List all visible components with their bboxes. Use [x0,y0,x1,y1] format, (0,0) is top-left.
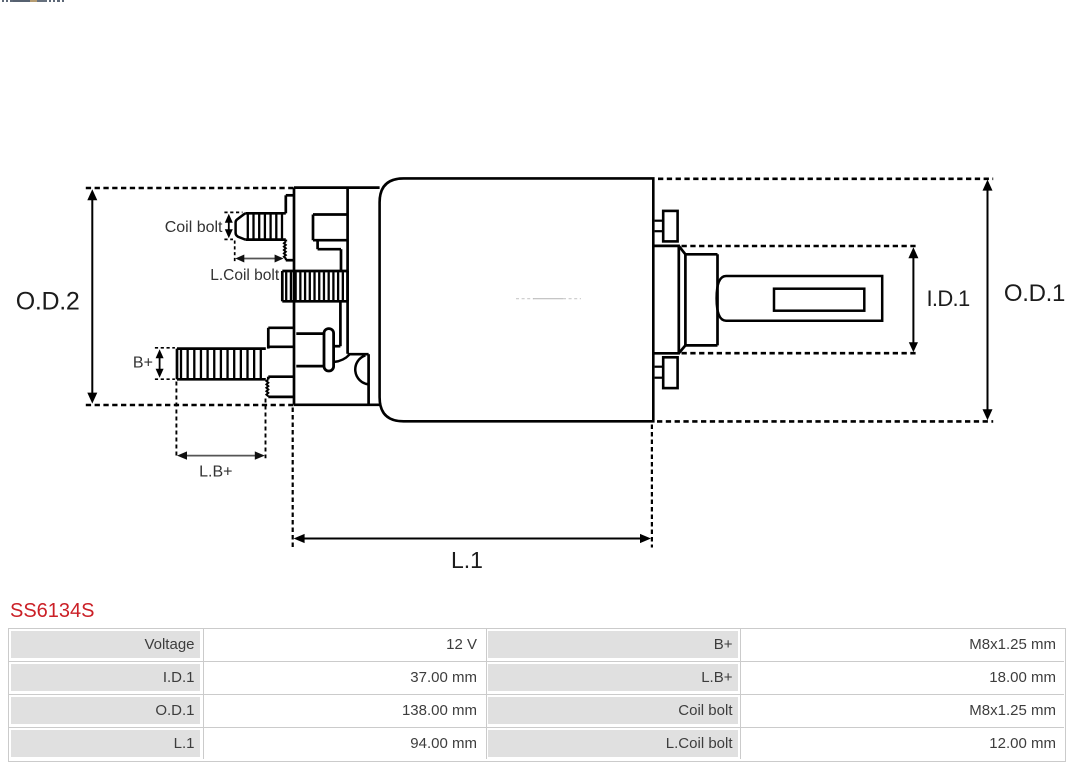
svg-text:L.1: L.1 [451,547,483,573]
svg-text:I.D.1: I.D.1 [927,286,970,311]
svg-text:O.D.1: O.D.1 [1004,280,1065,307]
svg-text:Coil bolt: Coil bolt [165,219,223,236]
svg-text:L.B+: L.B+ [199,463,232,480]
svg-text:L.Coil bolt: L.Coil bolt [210,267,280,284]
svg-text:B+: B+ [133,354,153,371]
svg-text:O.D.2: O.D.2 [16,288,80,316]
